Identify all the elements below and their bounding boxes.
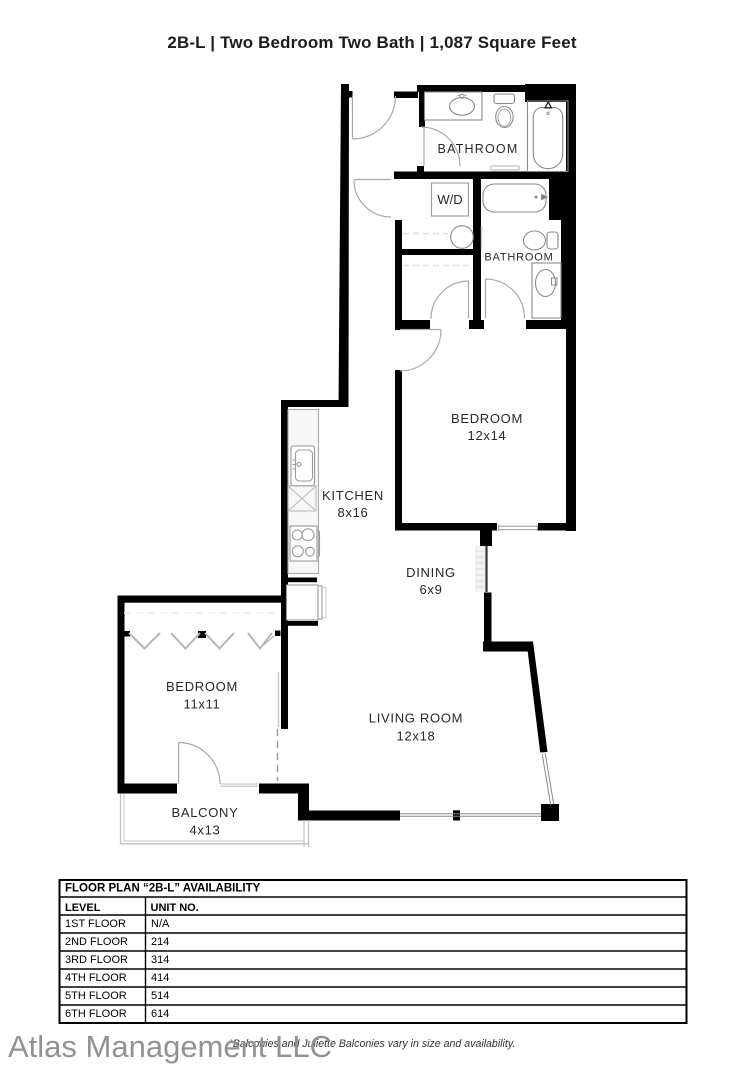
svg-text:BEDROOM: BEDROOM <box>451 411 523 426</box>
svg-text:BATHROOM: BATHROOM <box>484 252 553 264</box>
svg-text:614: 614 <box>151 1008 169 1020</box>
svg-text:2ND FLOOR: 2ND FLOOR <box>65 936 128 948</box>
svg-text:4TH FLOOR: 4TH FLOOR <box>65 972 127 984</box>
svg-text:1ST FLOOR: 1ST FLOOR <box>65 918 126 930</box>
svg-text:6TH FLOOR: 6TH FLOOR <box>65 1008 127 1020</box>
svg-text:414: 414 <box>151 972 169 984</box>
svg-text:3RD FLOOR: 3RD FLOOR <box>65 954 128 966</box>
svg-text:314: 314 <box>151 954 169 966</box>
svg-text:DINING: DINING <box>406 565 456 580</box>
svg-text:UNIT NO.: UNIT NO. <box>151 902 199 914</box>
svg-text:514: 514 <box>151 990 169 1002</box>
svg-text:6x9: 6x9 <box>419 582 442 597</box>
svg-text:BEDROOM: BEDROOM <box>166 679 238 694</box>
svg-text:BATHROOM: BATHROOM <box>438 142 519 156</box>
svg-text:FLOOR PLAN “2B-L” AVAILABILITY: FLOOR PLAN “2B-L” AVAILABILITY <box>65 882 261 894</box>
svg-text:Atlas Management LLC: Atlas Management LLC <box>8 1029 332 1064</box>
svg-text:W/D: W/D <box>437 192 462 207</box>
svg-text:4x13: 4x13 <box>190 823 221 838</box>
svg-text:12x18: 12x18 <box>397 729 436 744</box>
svg-text:KITCHEN: KITCHEN <box>322 488 384 503</box>
svg-text:214: 214 <box>151 936 169 948</box>
svg-text:11x11: 11x11 <box>184 697 221 712</box>
svg-text:BALCONY: BALCONY <box>171 805 238 820</box>
svg-text:N/A: N/A <box>151 918 170 930</box>
svg-text:12x14: 12x14 <box>468 428 507 443</box>
svg-text:LEVEL: LEVEL <box>65 902 101 914</box>
svg-text:8x16: 8x16 <box>338 505 369 520</box>
svg-text:LIVING ROOM: LIVING ROOM <box>369 711 463 726</box>
svg-text:2B-L | Two Bedroom Two Bath |: 2B-L | Two Bedroom Two Bath | 1,087 Squa… <box>167 33 576 52</box>
svg-text:5TH FLOOR: 5TH FLOOR <box>65 990 127 1002</box>
